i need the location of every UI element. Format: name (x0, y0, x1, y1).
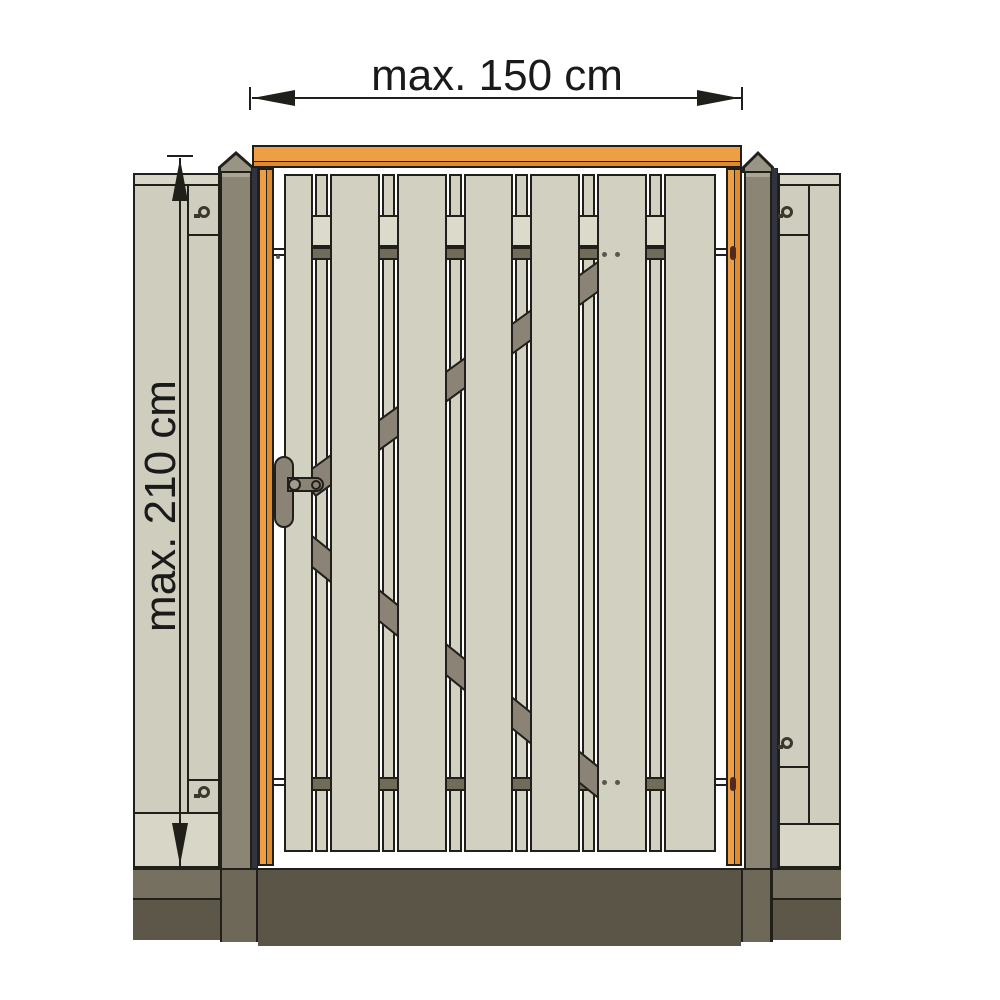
post-right-shadow-edge (772, 168, 778, 868)
door-back-plank (449, 174, 462, 852)
ledge-end-line (274, 778, 284, 780)
fence-panel-right-cap (780, 175, 839, 186)
arrow-left-icon (253, 90, 295, 106)
ledge-end-line (716, 784, 726, 786)
height-dimension-line (179, 158, 181, 866)
gate-stile-right (726, 168, 742, 866)
ground-center (258, 868, 741, 946)
width-dimension-line (252, 97, 742, 99)
height-dimension-label: max. 210 cm (139, 356, 183, 656)
plank-screw-dot (602, 252, 607, 257)
fence-panel-right-rail-joint-top (780, 234, 808, 236)
door-back-plank (315, 174, 328, 852)
width-dimension-tick-right (741, 87, 743, 110)
ground-left-upper (133, 868, 220, 898)
ground-post-left (220, 868, 258, 942)
ground-post-right (741, 868, 773, 942)
door-handle-pivot (288, 478, 301, 491)
fence-panel-left-plank-joint (187, 186, 189, 812)
door-front-plank (530, 174, 580, 852)
ledge-end-line (274, 248, 284, 250)
fence-panel-right-rail-joint-mid (780, 766, 808, 768)
post-left (220, 171, 252, 870)
ledge-end-line (274, 784, 284, 786)
door-back-plank (382, 174, 395, 852)
fence-panel-right-plank-joint (808, 186, 810, 824)
plank-screw-dot (615, 780, 620, 785)
gate-top-rail-edge (254, 161, 740, 166)
ledge-end-line (716, 778, 726, 780)
door-front-plank (664, 174, 716, 852)
door-handle-backplate (274, 456, 294, 528)
fence-panel-left-rail-joint-top (187, 234, 218, 236)
door-back-plank (649, 174, 662, 852)
ledge-end-line (716, 254, 726, 256)
hinge-pin-top-icon (730, 246, 736, 260)
hinge-pin-bottom-icon (730, 777, 736, 791)
post-right (744, 171, 772, 870)
door-handle-end-cap (311, 480, 321, 490)
post-left-shoulder (222, 173, 250, 177)
door-front-plank (597, 174, 647, 852)
arrow-right-icon (697, 90, 739, 106)
door-front-plank (330, 174, 380, 852)
gate-dimension-diagram: max. 150 cm max. 210 cm (0, 0, 1000, 1000)
height-dimension-tick-top (167, 155, 193, 157)
ground-right-lower (772, 898, 841, 940)
ground-left-lower (133, 898, 220, 940)
post-right-shoulder (746, 173, 770, 177)
fence-panel-left-rail-joint-bottom (187, 779, 218, 781)
fence-panel-right-bottom-board (780, 825, 839, 866)
plank-screw-dot (276, 255, 280, 259)
gate-top-rail (252, 145, 742, 168)
door-back-plank (515, 174, 528, 852)
width-dimension-label: max. 150 cm (252, 54, 742, 98)
gate-stile-left (258, 168, 274, 866)
plank-screw-dot (602, 780, 607, 785)
plank-screw-dot (615, 252, 620, 257)
width-dimension-tick-left (249, 87, 251, 110)
arrow-down-icon (172, 823, 188, 865)
ledge-end-line (716, 248, 726, 250)
fence-left-screw-bottom-tail (194, 794, 200, 798)
gate-stile-right-edge (734, 170, 740, 864)
fence-left-screw-top-tail (194, 214, 200, 218)
door-front-plank (397, 174, 447, 852)
gate-stile-left-edge (266, 170, 272, 864)
arrow-up-icon (172, 159, 188, 201)
ground-right-upper (772, 868, 841, 898)
door-front-plank (464, 174, 513, 852)
